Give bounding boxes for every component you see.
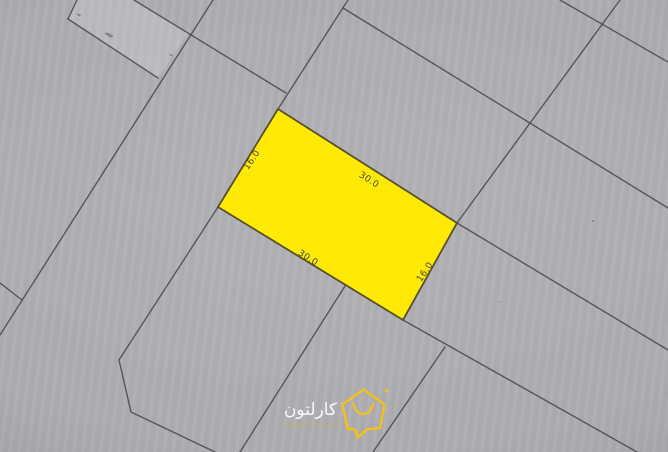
boundary-line [457,0,620,223]
brand-name-arabic: كارلتون [284,400,338,420]
carlton-logo-icon [343,389,389,438]
brand-tagline: CARLTON REAL ESTATE [284,423,339,428]
boundary-line [0,0,213,335]
boundary-line [403,320,637,452]
logo-dot [385,389,388,392]
watermark: كارلتون CARLTON REAL ESTATE [284,389,389,438]
boundary-polyline [119,207,218,452]
strip-parcel-shade [68,0,188,78]
boundary-line [457,223,668,350]
logo-smile [354,404,374,414]
cadastral-plot-map: 16.0 30.0 30.0 16.0 كارلتون CARLTON REAL… [0,0,668,452]
map-canvas: 16.0 30.0 30.0 16.0 كارلتون CARLTON REAL… [0,0,668,452]
highlighted-plot [218,109,457,320]
boundary-line [0,283,22,300]
boundary-line [373,347,445,452]
boundary-line [278,0,348,109]
boundary-line [343,8,668,208]
